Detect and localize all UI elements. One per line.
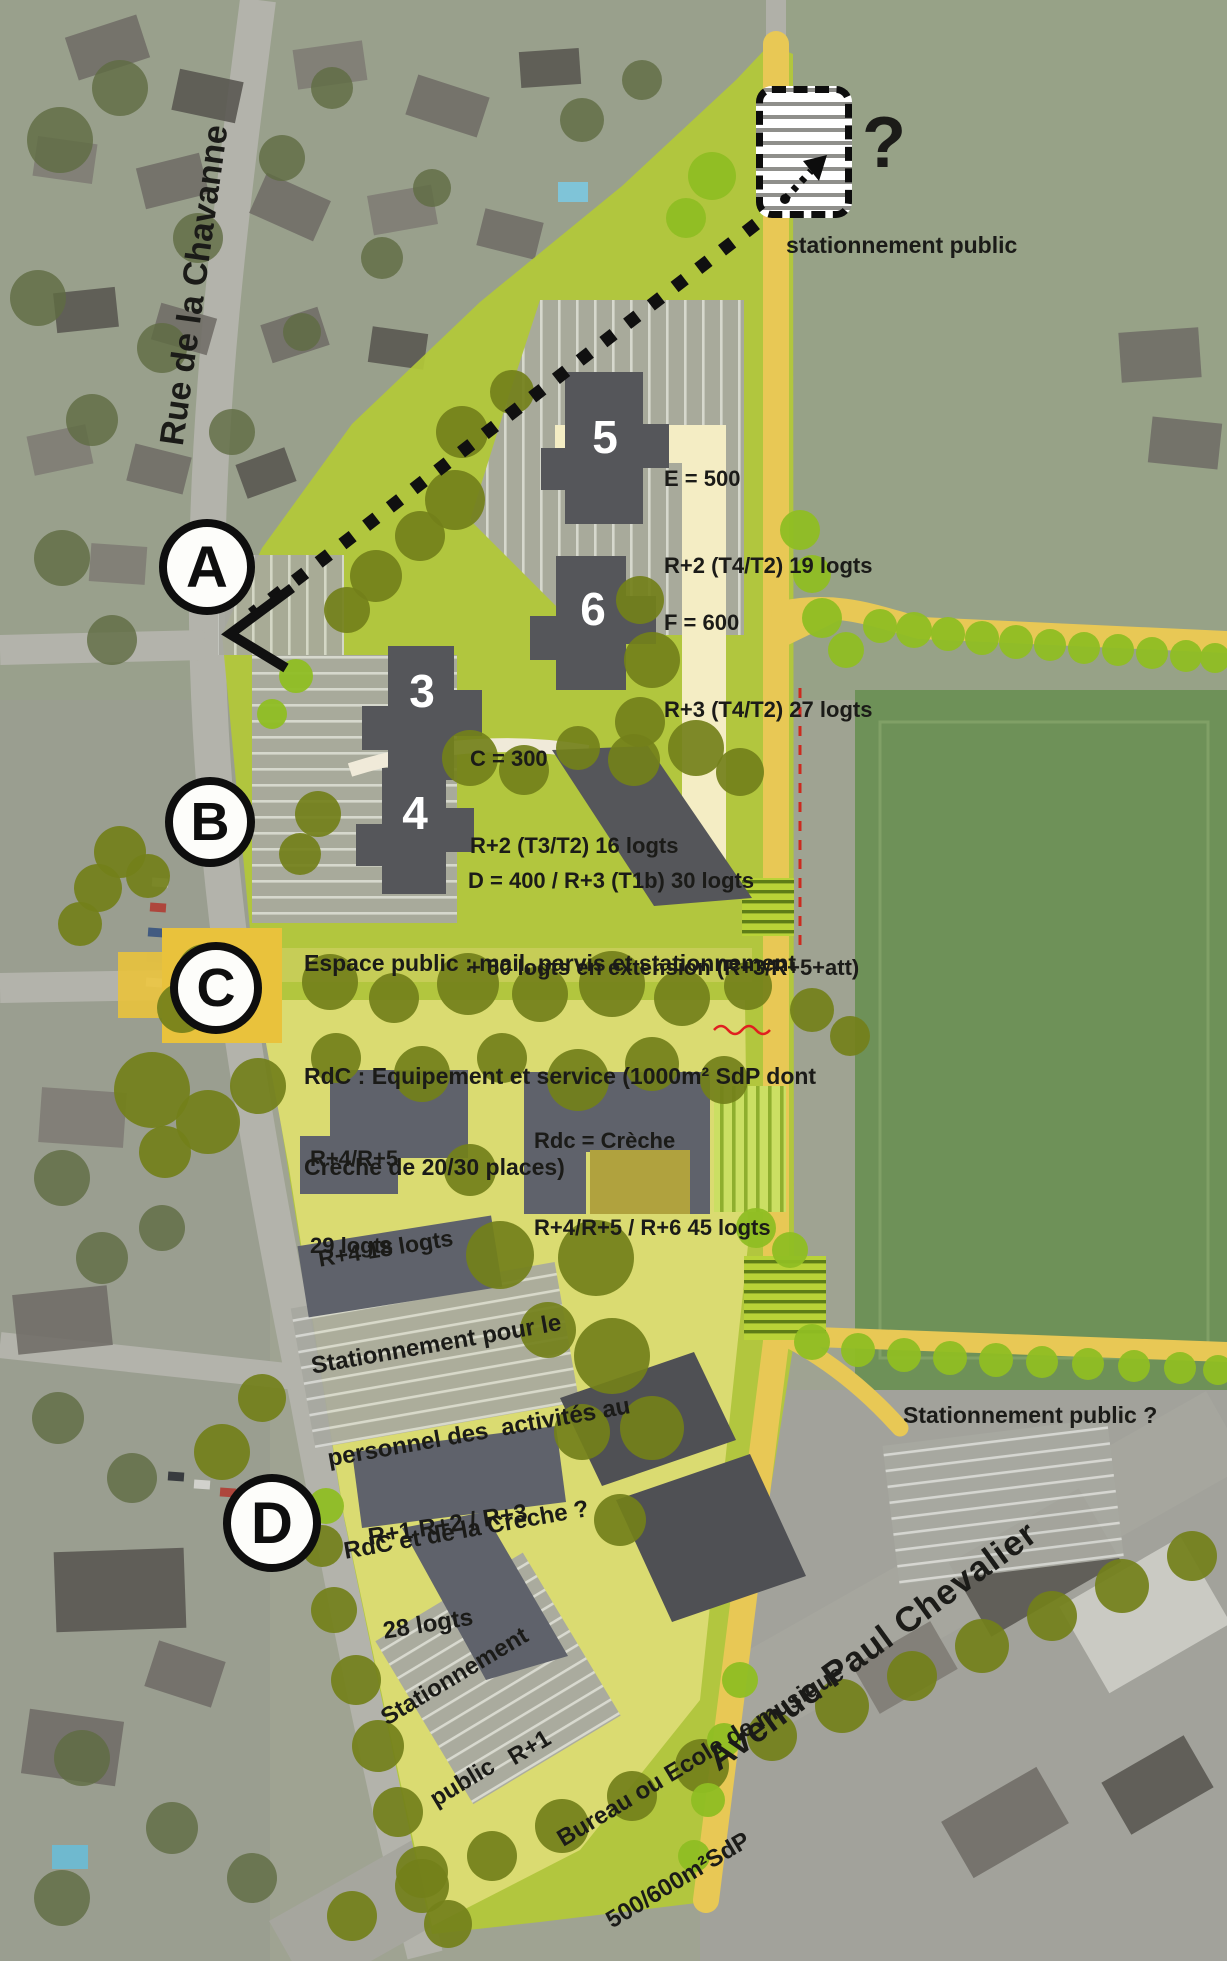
tree-icon [311,1587,357,1633]
tree-icon [311,67,353,109]
building-6-note-line1: F = 600 [664,608,872,637]
building-3-note-line1: C = 300 [470,744,678,773]
house-roof [89,543,148,585]
building-6-note: F = 600 R+3 (T4/T2) 27 logts [664,550,872,782]
tree-icon [10,270,66,326]
r123-note-line1: R+1 R+2 / R+3 [366,1497,530,1553]
public-parking-east-note: Stationnement public ? [903,1400,1157,1430]
tree-icon [1095,1559,1149,1613]
house-roof [54,1548,187,1632]
marker-d: D [223,1474,321,1572]
tree-icon [955,1619,1009,1673]
public-parking-top-label: stationnement public [786,230,1017,260]
tree-icon [896,612,932,648]
tree-icon [373,1787,423,1837]
tree-icon [979,1343,1013,1377]
tree-icon [194,1424,250,1480]
marker-c: C [170,942,262,1034]
car [150,902,167,912]
tree-icon [933,1341,967,1375]
r4r5-note-line1: R+4/R+5 [310,1144,398,1173]
tree-icon [34,1870,90,1926]
tree-icon [87,615,137,665]
marker-b: B [165,777,255,867]
tree-icon [666,198,706,238]
tree-icon [1118,1350,1150,1382]
tree-icon [259,135,305,181]
music-school-line2: Bureau ou Ecole de musique [552,1658,851,1855]
exit-arrow-icon [773,149,835,211]
tree-icon [395,511,445,561]
tree-icon [238,1374,286,1422]
house-roof [1148,416,1222,469]
tree-icon [34,530,90,586]
marker-a: A [159,519,255,615]
tree-icon [27,107,93,173]
tree-icon [965,621,999,655]
tree-icon [107,1453,157,1503]
tree-icon [688,152,736,200]
tree-icon [279,833,321,875]
tree-icon [395,1859,449,1913]
tree-icon [622,60,662,100]
tree-icon [931,617,965,651]
tree-icon [1026,1346,1058,1378]
house-roof [38,1087,127,1148]
car [168,1471,185,1481]
building-4-number: 4 [393,790,437,836]
tree-icon [54,1730,110,1786]
pool [52,1845,88,1869]
building-5-number: 5 [583,414,627,460]
masterplan-map: ? stationnement public Rue de la Chavann… [0,0,1227,1961]
tree-icon [139,1126,191,1178]
football-field [855,690,1227,1390]
tree-icon [413,169,451,207]
tree-icon [560,98,604,142]
tree-icon [92,60,148,116]
building-3-number: 3 [400,668,444,714]
tree-icon [139,1205,185,1251]
tree-icon [841,1333,875,1367]
building-5-note-line1: E = 500 [664,464,872,493]
tree-icon [324,587,370,633]
public-parking-question-icon [756,86,852,218]
tree-icon [361,237,403,279]
tree-icon [209,409,255,455]
tree-icon [295,791,341,837]
espace-public-note: Espace public : mail, parvis et stationn… [304,948,796,978]
tree-icon [126,854,170,898]
house-roof [519,48,581,88]
staff-parking-line1: Stationnement pour le [309,1298,617,1382]
tree-icon [76,1232,128,1284]
creche-note-line1: Rdc = Crèche [534,1126,771,1155]
tree-icon [1170,640,1202,672]
tree-icon [227,1853,277,1903]
tree-icon [1167,1531,1217,1581]
car [148,927,165,937]
tree-icon [230,1058,286,1114]
building-4-note-line1: D = 400 / R+3 (T1b) 30 logts [468,866,859,895]
tree-icon [999,625,1033,659]
tree-icon [257,699,287,729]
tree-icon [34,1150,90,1206]
tree-icon [32,1392,84,1444]
building-6-number: 6 [571,586,615,632]
tree-icon [146,1802,198,1854]
question-mark: ? [862,96,906,191]
house-roof [12,1285,113,1355]
tree-icon [1027,1591,1077,1641]
pool [558,182,588,202]
car [194,1479,211,1489]
creche-note-line2: R+4/R+5 / R+6 45 logts [534,1213,771,1242]
tree-icon [1136,637,1168,669]
building-6-note-line2: R+3 (T4/T2) 27 logts [664,695,872,724]
tree-icon [1164,1352,1196,1384]
tree-icon [1034,629,1066,661]
tree-icon [794,1324,830,1360]
tree-icon [616,576,664,624]
tree-icon [1102,634,1134,666]
tree-icon [283,313,321,351]
tree-icon [58,902,102,946]
house-roof [1118,327,1201,382]
tree-icon [887,1338,921,1372]
tree-icon [1068,632,1100,664]
tree-icon [327,1891,377,1941]
tree-icon [66,394,118,446]
tree-icon [1072,1348,1104,1380]
